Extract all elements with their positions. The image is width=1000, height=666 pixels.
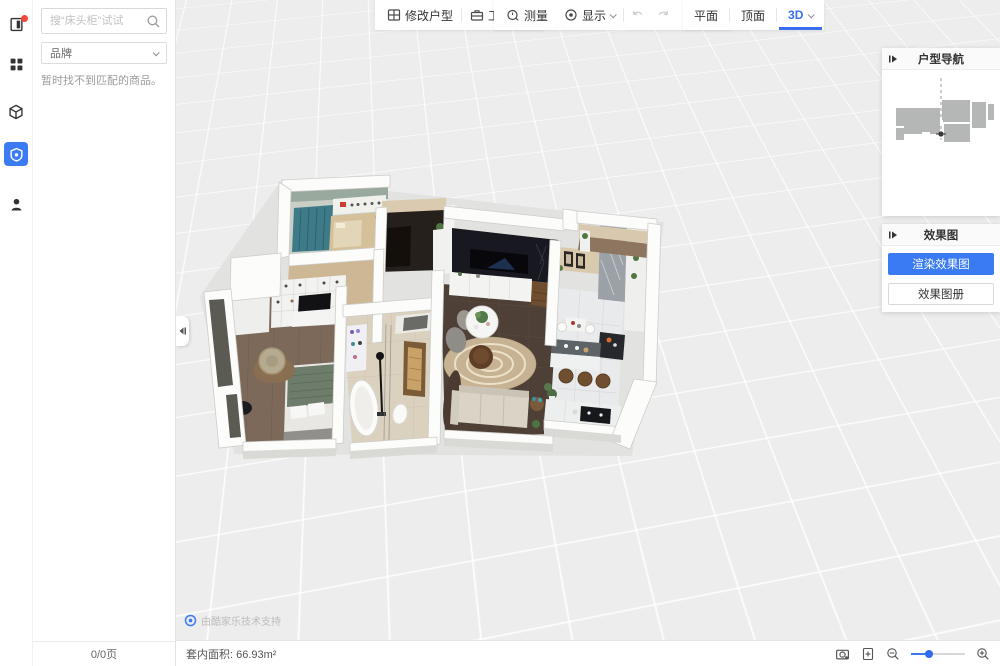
render-panel-header: 效果图 [882,224,1000,246]
pagination: 0/0页 [33,641,175,666]
kujiale-logo-icon [184,614,197,627]
left-icon-bar [0,0,32,666]
sidebar-item-library[interactable] [0,48,32,80]
brand-filter-label: 品牌 [50,45,72,61]
search-box [41,8,167,34]
floorplan-grid-icon [387,8,401,22]
zoom-controls [835,646,990,661]
navigation-panel-header: 户型导航 [882,48,1000,70]
redo-icon [656,8,671,23]
chevron-down-icon [808,11,815,18]
zoom-slider[interactable] [911,647,965,661]
model-cube-icon [8,104,24,120]
room-living [433,228,558,437]
tab-3d-view[interactable]: 3D [777,0,824,30]
render-panel: 效果图 渲染效果图 效果图册 [882,224,1000,312]
sidebar-item-catalog[interactable] [0,8,32,40]
collapse-sidebar-tab[interactable] [176,316,189,346]
home-shield-icon [9,147,24,162]
app-window: 品牌 暂时找不到匹配的商品。 0/0页 [0,0,1000,666]
tab-plan-view[interactable]: 平面 [683,0,729,30]
modify-floorplan-button[interactable]: 修改户型 [379,0,461,30]
render-image-button[interactable]: 渲染效果图 [888,253,994,275]
watermark: 由酷家乐技术支持 [184,613,281,628]
display-label: 显示 [582,7,606,24]
modify-floorplan-label: 修改户型 [405,7,453,24]
display-button[interactable]: 显示 [556,0,623,30]
room-bedroom [228,275,346,445]
measure-icon [506,8,520,22]
catalog-panel: 品牌 暂时找不到匹配的商品。 0/0页 [32,0,176,666]
sidebar-item-user[interactable] [0,188,32,220]
notification-dot [21,15,28,22]
zoom-slider-knob[interactable] [925,650,933,658]
measure-button[interactable]: 测量 [498,0,556,30]
render-album-button[interactable]: 效果图册 [888,283,994,305]
tab-plan-label: 平面 [694,7,718,24]
measure-label: 测量 [524,7,548,24]
design-canvas[interactable]: 修改户型 工具箱 测量 显示 [176,0,1000,640]
display-eye-icon [564,8,578,22]
brand-filter-dropdown[interactable]: 品牌 [41,42,167,64]
tab-3d-label: 3D [788,8,803,22]
redo-button[interactable] [650,0,676,30]
status-bar: 套内面积: 66.93m² [176,640,1000,666]
collapse-left-icon [178,326,187,336]
undo-icon [630,8,645,23]
room-balcony [285,181,388,255]
collapse-panel-icon[interactable] [888,54,898,64]
chevron-down-icon [610,11,617,18]
view-switcher: 平面 顶面 3D [683,0,824,30]
render-panel-title: 效果图 [924,227,959,243]
collapse-panel-icon[interactable] [888,230,898,240]
user-icon [9,197,24,212]
undo-button[interactable] [624,0,650,30]
sidebar-item-models[interactable] [0,96,32,128]
area-label: 套内面积: 66.93m² [186,646,276,662]
watermark-text: 由酷家乐技术支持 [201,613,281,628]
sidebar-item-design-active[interactable] [4,142,28,166]
search-icon [146,14,161,29]
floorplan-navigation-panel: 户型导航 [882,48,1000,216]
chevron-down-icon [153,49,160,56]
toolbox-icon [470,8,484,22]
room-bathroom [343,304,440,446]
tab-ceiling-view[interactable]: 顶面 [730,0,776,30]
apps-grid-icon [9,57,24,72]
new-page-icon[interactable] [861,647,875,661]
zoom-out-icon[interactable] [886,647,900,661]
zoom-in-icon[interactable] [976,647,990,661]
tab-ceiling-label: 顶面 [741,7,765,24]
floorplan-3d-scene[interactable] [176,0,1000,640]
minimap[interactable] [882,70,1000,215]
camera-view-icon[interactable] [835,646,850,661]
navigation-panel-title: 户型导航 [918,51,964,67]
empty-result-text: 暂时找不到匹配的商品。 [41,72,162,88]
